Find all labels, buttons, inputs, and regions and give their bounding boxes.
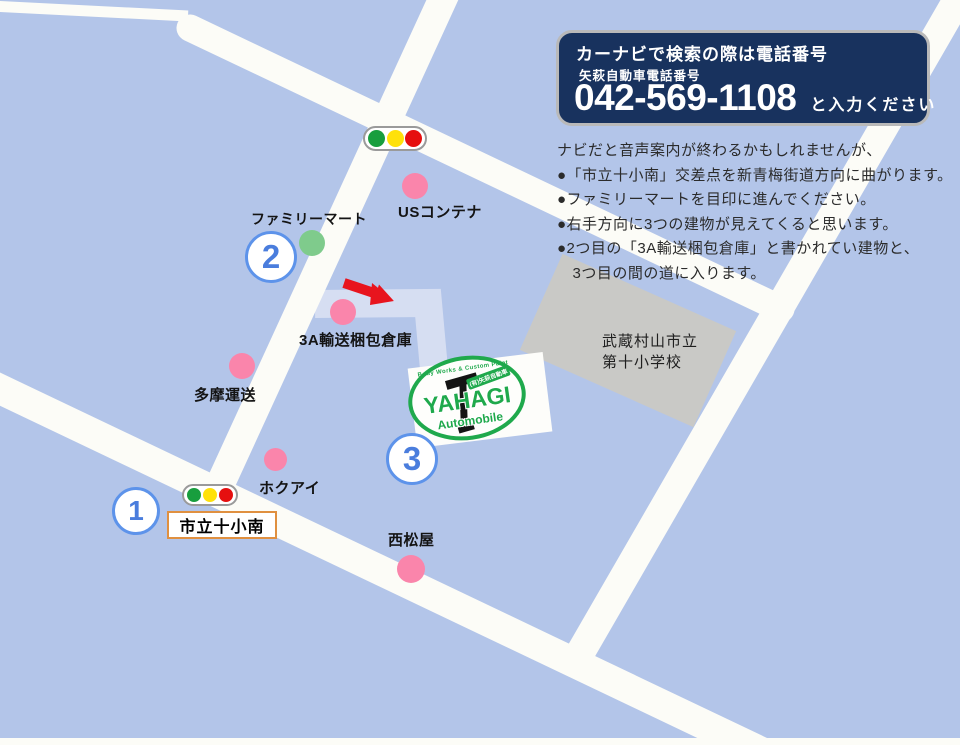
school-label: 武蔵村山市立 第十小学校: [602, 331, 698, 373]
label-us-container: USコンテナ: [398, 201, 482, 222]
marker-3a-warehouse: [330, 299, 356, 325]
road-top-edge: [0, 6, 188, 16]
traffic-light-north: [363, 126, 427, 151]
green-light-icon: [187, 488, 201, 502]
phone-number: 042-569-1108: [574, 77, 796, 119]
directions: ナビだと音声案内が終わるかもしれませんが、 ●「市立十小南」交差点を新青梅街道方…: [557, 139, 952, 287]
route-number-3: 3: [386, 433, 438, 485]
green-light-icon: [368, 130, 385, 147]
direction-line: ●ファミリーマートを目印に進んでください。: [557, 188, 952, 213]
direction-line: 3つ目の間の道に入ります。: [557, 262, 952, 287]
direction-line: ●右手方向に3つの建物が見えてくると思います。: [557, 213, 952, 238]
marker-us-container: [402, 173, 428, 199]
marker-nishimatsuya: [397, 555, 425, 583]
label-tama-unso: 多摩運送: [194, 384, 256, 405]
info-box: カーナビで検索の際は電話番号 矢萩自動車電話番号 042-569-1108 と入…: [556, 30, 930, 126]
red-light-icon: [405, 130, 422, 147]
marker-tama-unso: [229, 353, 255, 379]
access-map: 武蔵村山市立 第十小学校 Body Works & Custom Paint (…: [0, 0, 960, 745]
intersection-sign: 市立十小南: [167, 511, 277, 539]
marker-familymart: [299, 230, 325, 256]
label-3a-warehouse: 3A輸送梱包倉庫: [299, 329, 412, 350]
route-number-2: 2: [245, 231, 297, 283]
road-southwest: [0, 382, 770, 745]
yellow-light-icon: [203, 488, 217, 502]
direction-line: ナビだと音声案内が終わるかもしれませんが、: [557, 139, 952, 164]
route-number-1: 1: [112, 487, 160, 535]
label-hokuai: ホクアイ: [259, 477, 320, 498]
direction-line: ●「市立十小南」交差点を新青梅街道方向に曲がります。: [557, 164, 952, 189]
marker-hokuai: [264, 448, 287, 471]
yellow-light-icon: [387, 130, 404, 147]
direction-line: ●2つ目の「3A輸送梱包倉庫」と書かれてい建物と、: [557, 237, 952, 262]
traffic-light-south: [182, 484, 238, 506]
phone-suffix: と入力ください: [810, 91, 936, 115]
label-familymart: ファミリーマート: [251, 209, 367, 229]
label-nishimatsuya: 西松屋: [388, 529, 435, 550]
info-title: カーナビで検索の際は電話番号: [576, 40, 828, 65]
info-phone-row: 042-569-1108 と入力ください: [574, 77, 936, 119]
red-light-icon: [219, 488, 233, 502]
bottom-edge-strip: [0, 738, 960, 745]
